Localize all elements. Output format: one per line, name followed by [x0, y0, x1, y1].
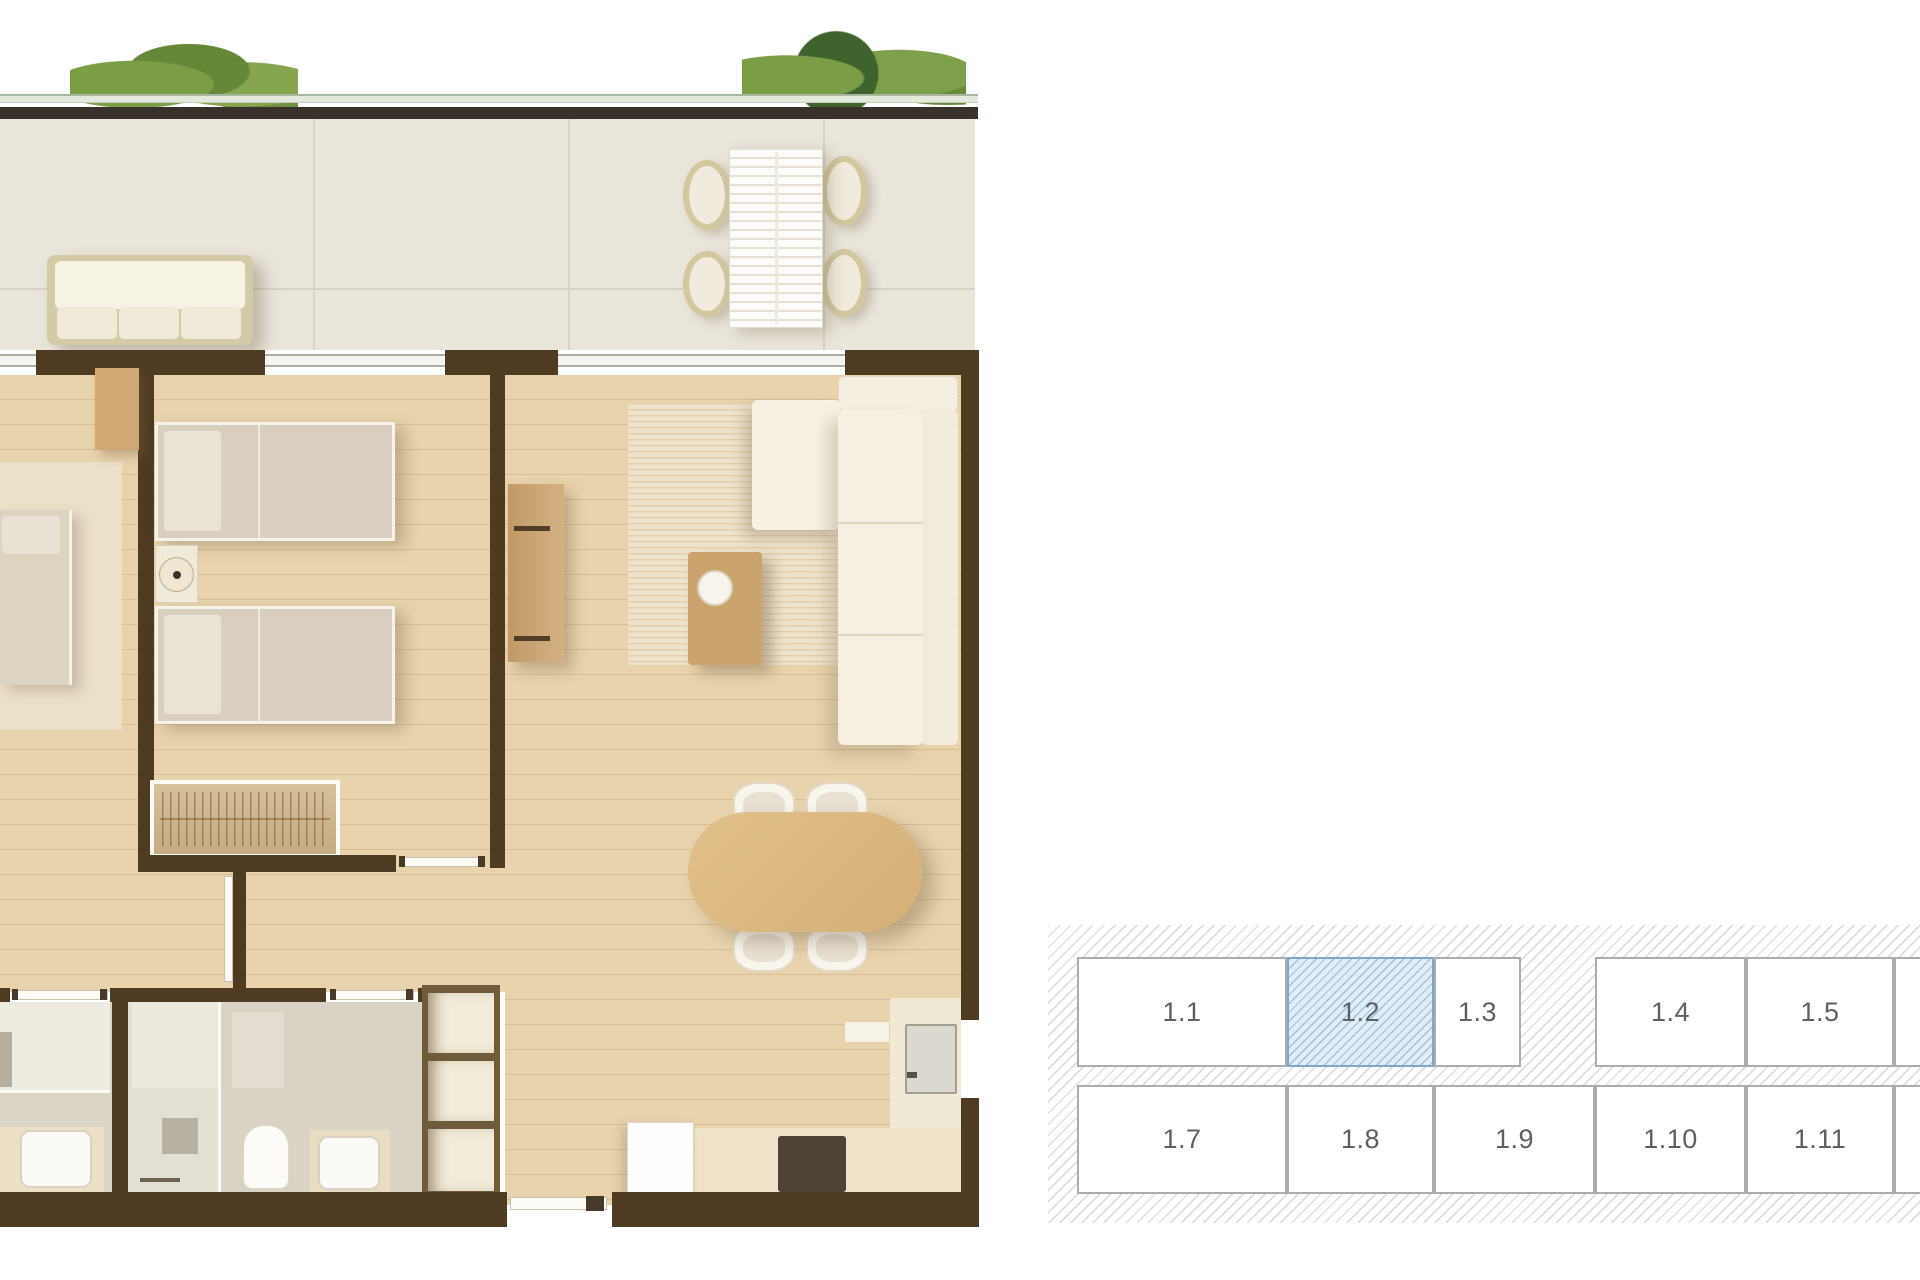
cushion-seam — [838, 522, 923, 524]
unit-cell-label: 1.3 — [1458, 997, 1497, 1028]
bedroom-right-wall — [490, 375, 505, 868]
unit-cell-label: 1.5 — [1800, 997, 1839, 1028]
entry-opening — [961, 1020, 979, 1098]
pillow — [164, 431, 221, 531]
terrace-parapet-wall — [0, 107, 978, 119]
wardrobe-closet — [150, 780, 340, 858]
unit-cell-partial-bottom[interactable] — [1894, 1085, 1920, 1194]
shelf-compartment — [428, 1061, 494, 1121]
door-hinge — [100, 989, 107, 1000]
unit-cell-label: 1.1 — [1162, 997, 1201, 1028]
unit-cell-1.2[interactable]: 1.2 — [1287, 957, 1434, 1067]
door-hinge — [399, 856, 405, 867]
outdoor-dining-table — [729, 147, 823, 328]
pillow — [2, 516, 60, 554]
sliding-door — [265, 354, 445, 367]
sliding-door — [558, 354, 845, 367]
bathroom-2 — [128, 1002, 422, 1192]
unit-cell-1.9[interactable]: 1.9 — [1434, 1085, 1595, 1194]
bathroom1-door — [12, 990, 108, 1000]
unit-cell-1.4[interactable]: 1.4 — [1595, 957, 1746, 1067]
shower-glass — [0, 1090, 110, 1093]
coffee-table — [688, 552, 762, 665]
outdoor-sofa-cushion — [57, 307, 117, 339]
unit-cell-label: 1.4 — [1651, 997, 1690, 1028]
outdoor-chair — [683, 160, 731, 230]
cushion-seam — [838, 634, 923, 636]
shower-fixture — [0, 1032, 12, 1087]
sofa-backrest-right — [921, 410, 958, 745]
shower-faucet — [140, 1178, 180, 1182]
dining-table — [688, 812, 922, 932]
nightstand — [155, 545, 198, 603]
bathroom-1 — [0, 1002, 112, 1192]
outdoor-chair — [821, 156, 867, 226]
tile-joint — [568, 119, 570, 350]
bedroom-bottom-wall — [138, 855, 396, 872]
bedroom-door — [399, 857, 485, 867]
shelf-compartment — [428, 1129, 494, 1191]
shower-fixture — [162, 1118, 198, 1154]
bottom-wall — [0, 1192, 507, 1227]
tile-joint — [313, 119, 315, 350]
door-hinge — [586, 1196, 604, 1211]
duvet-fold — [258, 609, 260, 721]
door-handle — [907, 1072, 917, 1078]
unit-cell-label: 1.10 — [1643, 1124, 1698, 1155]
unit-cell-1.1[interactable]: 1.1 — [1077, 957, 1287, 1067]
cooktop — [778, 1136, 846, 1192]
unit-map: 1.1 1.2 1.3 1.4 1.5 1.7 1.8 1.9 1.10 — [1048, 925, 1920, 1223]
window — [0, 354, 36, 367]
twin-bed — [155, 422, 395, 541]
unit-cell-label: 1.11 — [1794, 1124, 1847, 1155]
unit-cell-1.10[interactable]: 1.10 — [1595, 1085, 1746, 1194]
shower — [0, 1002, 110, 1090]
shelf-compartment — [428, 993, 494, 1053]
door-hinge — [478, 856, 485, 867]
closet-rail — [160, 818, 330, 820]
handle — [514, 526, 550, 531]
tray-icon — [697, 570, 733, 606]
unit-cell-1.8[interactable]: 1.8 — [1287, 1085, 1434, 1194]
chair-seat — [816, 934, 858, 962]
unit-cell-1.5[interactable]: 1.5 — [1746, 957, 1894, 1067]
unit-cell-1.3[interactable]: 1.3 — [1434, 957, 1521, 1067]
unit-cell-label: 1.8 — [1341, 1124, 1380, 1155]
outdoor-sofa-cushion — [181, 307, 241, 339]
sink — [20, 1130, 92, 1188]
outdoor-sofa — [47, 255, 253, 345]
table-lamp-icon — [159, 557, 194, 592]
chair-seat — [743, 934, 785, 962]
sofa-chaise — [752, 400, 840, 530]
entry-door — [905, 1024, 957, 1094]
desk — [95, 368, 139, 450]
bedroom2-bed — [0, 510, 72, 685]
wall-segment — [36, 350, 265, 375]
handle — [514, 636, 550, 641]
outdoor-sofa-back — [55, 261, 245, 309]
sofa-backrest-top — [838, 376, 958, 412]
kitchen-paper — [845, 1022, 889, 1042]
hall-wall — [233, 872, 246, 992]
outdoor-chair — [821, 249, 867, 317]
unit-cell-label: 1.7 — [1162, 1124, 1201, 1155]
wall-segment — [445, 350, 558, 375]
unit-cell-partial-top[interactable] — [1894, 957, 1920, 1067]
hall-door — [224, 876, 233, 982]
storage-shelves — [422, 985, 500, 1200]
unit-cell-1.11[interactable]: 1.11 — [1746, 1085, 1894, 1194]
bathroom-top-wall — [110, 988, 326, 1002]
bathroom-top-wall — [0, 988, 10, 1002]
wall-mirror — [232, 1012, 284, 1088]
sink — [318, 1136, 380, 1190]
door-hinge — [330, 989, 336, 1000]
tv-sideboard — [508, 484, 564, 662]
outdoor-sofa-cushion — [119, 307, 179, 339]
shower-glass — [218, 1002, 221, 1192]
bathroom-divider-wall — [112, 988, 128, 1192]
floor-plan — [0, 0, 985, 1240]
sofa-seats — [838, 410, 923, 745]
pillow — [164, 615, 221, 714]
bathroom2-door — [330, 990, 414, 1000]
glass-balustrade — [0, 94, 978, 103]
tile-joint — [823, 119, 825, 350]
lamp-finial — [173, 571, 181, 579]
shower-bright — [132, 1002, 218, 1088]
unit-cell-1.7[interactable]: 1.7 — [1077, 1085, 1287, 1194]
unit-cell-label: 1.9 — [1495, 1124, 1534, 1155]
table-divider — [775, 152, 778, 324]
duvet-fold — [258, 425, 260, 538]
twin-bed — [155, 606, 395, 724]
outdoor-chair — [683, 251, 731, 317]
wall-segment — [845, 350, 963, 375]
unit-cell-label: 1.2 — [1341, 997, 1380, 1028]
door-hinge — [406, 989, 413, 1000]
bottom-wall — [612, 1192, 961, 1227]
door-hinge — [12, 989, 18, 1000]
page: 1.1 1.2 1.3 1.4 1.5 1.7 1.8 1.9 1.10 — [0, 0, 1920, 1280]
toilet — [242, 1124, 290, 1190]
